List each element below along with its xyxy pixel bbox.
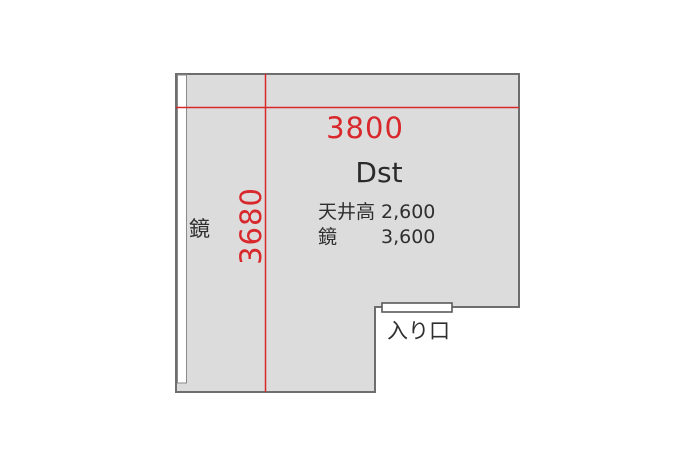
spec-row-ceiling: 天井高 2,600 (318, 200, 435, 225)
mirror-length-value: 3,600 (381, 225, 435, 250)
ceiling-height-label: 天井高 (318, 200, 381, 225)
width-dimension-label: 3800 (320, 111, 410, 145)
wall-mirror-label: 鏡 (189, 213, 210, 243)
mirror-length-label: 鏡 (318, 225, 381, 250)
spec-row-mirror: 鏡 3,600 (318, 225, 435, 250)
depth-dimension-label: 3680 (236, 183, 266, 269)
entrance-label: 入り口 (387, 315, 450, 345)
ceiling-height-value: 2,600 (381, 200, 435, 225)
entrance-door (382, 303, 452, 312)
room-title: Dst (339, 156, 419, 189)
spec-block: 天井高 2,600 鏡 3,600 (318, 200, 435, 250)
floor-plan: 3800 3680 Dst 天井高 2,600 鏡 3,600 鏡 入り口 (0, 0, 700, 465)
mirror-strip (178, 75, 187, 383)
